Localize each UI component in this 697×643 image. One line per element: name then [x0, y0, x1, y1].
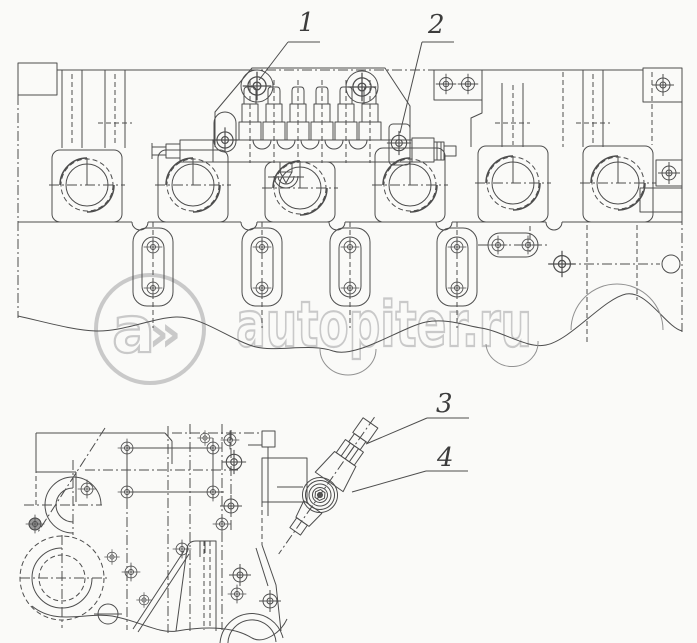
injectors: [239, 80, 381, 163]
bolt-hole-markers: [26, 430, 281, 624]
parts-diagram-svg: a » autopiter.ru: [0, 0, 697, 643]
right-banjo-fitting: [412, 138, 456, 162]
pump-mount-bracket: [262, 458, 307, 502]
right-taper-edge: [220, 502, 283, 643]
engine-block-front-view: [20, 424, 287, 643]
front-bores: [20, 460, 108, 628]
callout-3: 3: [366, 389, 469, 444]
callout-4: 4: [352, 443, 468, 492]
callout-1: 1: [259, 8, 320, 80]
bearing-boss-pads: [52, 146, 653, 222]
fuel-rail: [213, 140, 412, 162]
callout-2-label: 2: [427, 10, 445, 40]
callout-2: 2: [400, 10, 454, 133]
fuel-supply-pump-assembly: [262, 407, 389, 564]
callout-3-label: 3: [436, 389, 453, 419]
break-line-bottom-figure: [32, 606, 287, 640]
primer-cap: [353, 418, 378, 443]
diagonal-strut: [133, 540, 191, 632]
technical-drawing-page: a » autopiter.ru: [0, 0, 697, 643]
callout-1-label: 1: [298, 8, 315, 38]
cylinder-bores: [49, 156, 656, 215]
callout-4-label: 4: [436, 443, 454, 473]
right-edge-tabs: [640, 160, 682, 212]
left-banjo-fitting: [152, 140, 213, 162]
